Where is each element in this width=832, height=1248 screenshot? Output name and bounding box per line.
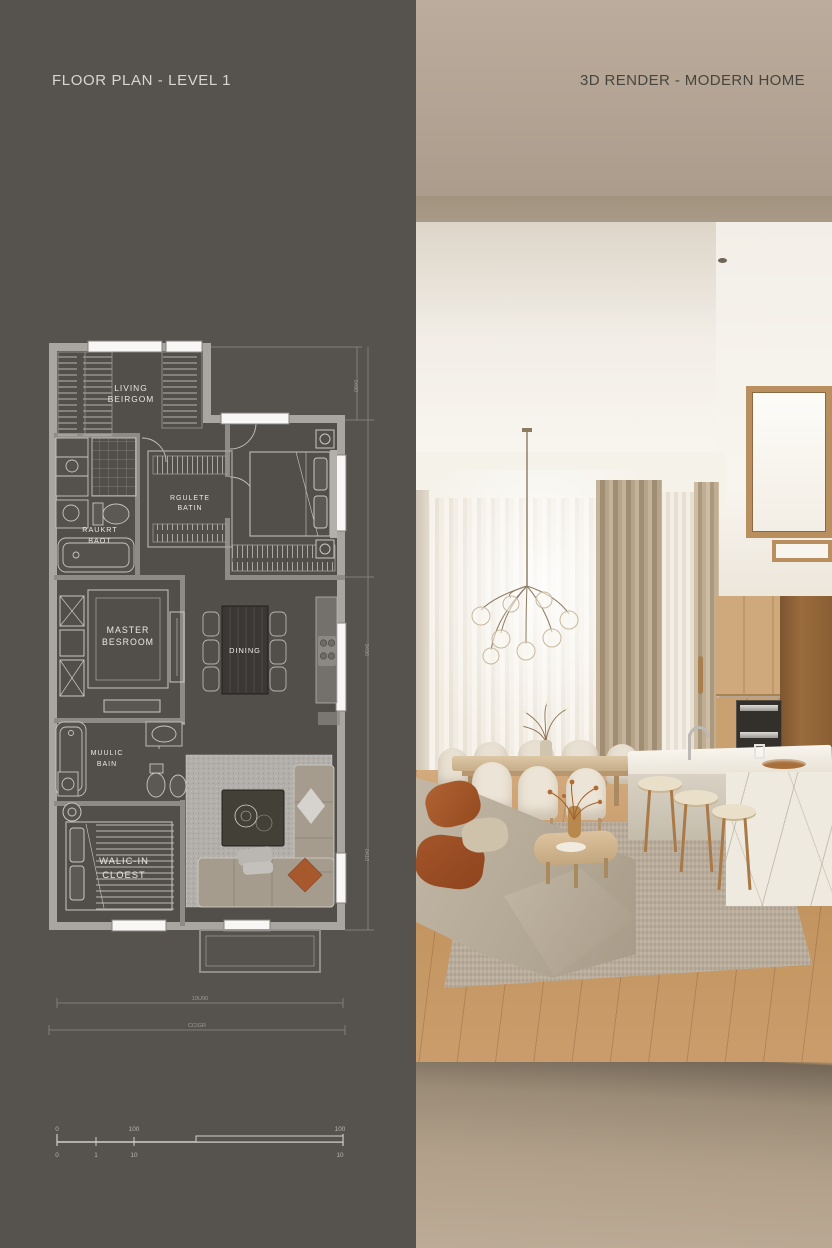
label-wardrobe-1: RGULETE — [170, 495, 210, 502]
label-dining: DINING — [229, 646, 261, 655]
wall-band-shadow — [416, 196, 832, 222]
floor-plan-panel: FLOOR PLAN - LEVEL 1 — [0, 0, 416, 1248]
stool-seat — [638, 776, 682, 791]
chandelier — [456, 428, 606, 678]
label-living-1: LIVING — [114, 383, 147, 393]
ceiling-vent — [718, 258, 727, 263]
label-master-2: BESROOM — [102, 637, 154, 647]
dim-bottom-outer: CCIGR — [188, 1023, 206, 1029]
stool-seat — [712, 804, 756, 819]
faucet-stem — [688, 734, 691, 760]
clerestory-window-lower — [772, 540, 832, 562]
stool-leg — [680, 804, 688, 872]
scale-bottom-2: 10 — [130, 1152, 138, 1159]
scale-top-2: 100 — [335, 1126, 346, 1133]
dim-right-mid: 9490 — [363, 644, 369, 656]
wall-band-top — [416, 0, 832, 196]
label-walkin-2: CLOEST — [102, 869, 146, 880]
scale-bar: 0 100 100 0 1 10 10 — [55, 1126, 346, 1159]
dried-flowers — [542, 778, 606, 820]
coffee-table-tray — [556, 842, 586, 852]
scale-bottom-0: 0 — [55, 1152, 59, 1159]
label-living-2: BEIRGOM — [108, 394, 155, 404]
upper-cabinets — [716, 596, 780, 696]
render-title: 3D RENDER - MODERN HOME — [580, 72, 805, 89]
coffee-table-leg — [604, 858, 608, 878]
scale-bottom-1: 1 — [94, 1152, 98, 1159]
floor-plan-title: FLOOR PLAN - LEVEL 1 — [52, 72, 231, 89]
coffee-table-leg — [574, 864, 578, 888]
oven-handle-bottom — [740, 732, 778, 738]
table-leg — [614, 776, 619, 806]
label-bath1-2: BAOT — [88, 536, 112, 545]
presentation-image: FLOOR PLAN - LEVEL 1 — [0, 0, 832, 1248]
coffee-table-leg — [546, 862, 550, 884]
plan-coffee-table — [222, 790, 284, 846]
render-panel: 3D RENDER - MODERN HOME — [416, 0, 832, 1248]
dim-right-top: 0490 — [352, 380, 358, 392]
door-handle — [698, 656, 703, 694]
dim-bottom-inner: 10U90 — [192, 996, 208, 1002]
foreground-blur — [416, 1062, 832, 1248]
oven-handle-top — [740, 705, 778, 711]
stool-seat — [674, 790, 718, 805]
label-master-1: MASTER — [107, 625, 150, 635]
living-furniture — [186, 755, 334, 907]
stool-leg — [717, 818, 725, 890]
porch-outline — [200, 930, 320, 972]
floor-plan-drawing: LIVING BEIRGOM RGULETE BATIN RAUKRT BAOT… — [0, 330, 416, 1180]
scale-top-0: 0 — [55, 1126, 59, 1133]
label-walkin-1: WALIC-IN — [99, 855, 149, 866]
dim-right-bottom: 0410 — [363, 849, 369, 861]
glassware — [754, 744, 765, 759]
stool-leg — [743, 818, 751, 890]
table-vase-branches — [516, 700, 576, 762]
clerestory-window — [746, 386, 832, 538]
label-wardrobe-2: BATIN — [177, 505, 202, 512]
scale-bottom-3: 10 — [336, 1152, 344, 1159]
wooden-bowl — [762, 759, 806, 769]
scale-top-1: 100 — [129, 1126, 140, 1133]
bar-stool — [712, 804, 758, 904]
label-bath2-1: MUULIC — [91, 750, 124, 757]
label-bath1-1: RAUKRT — [82, 525, 117, 534]
label-bath2-2: BAIN — [97, 761, 117, 768]
stool-leg — [644, 790, 651, 852]
